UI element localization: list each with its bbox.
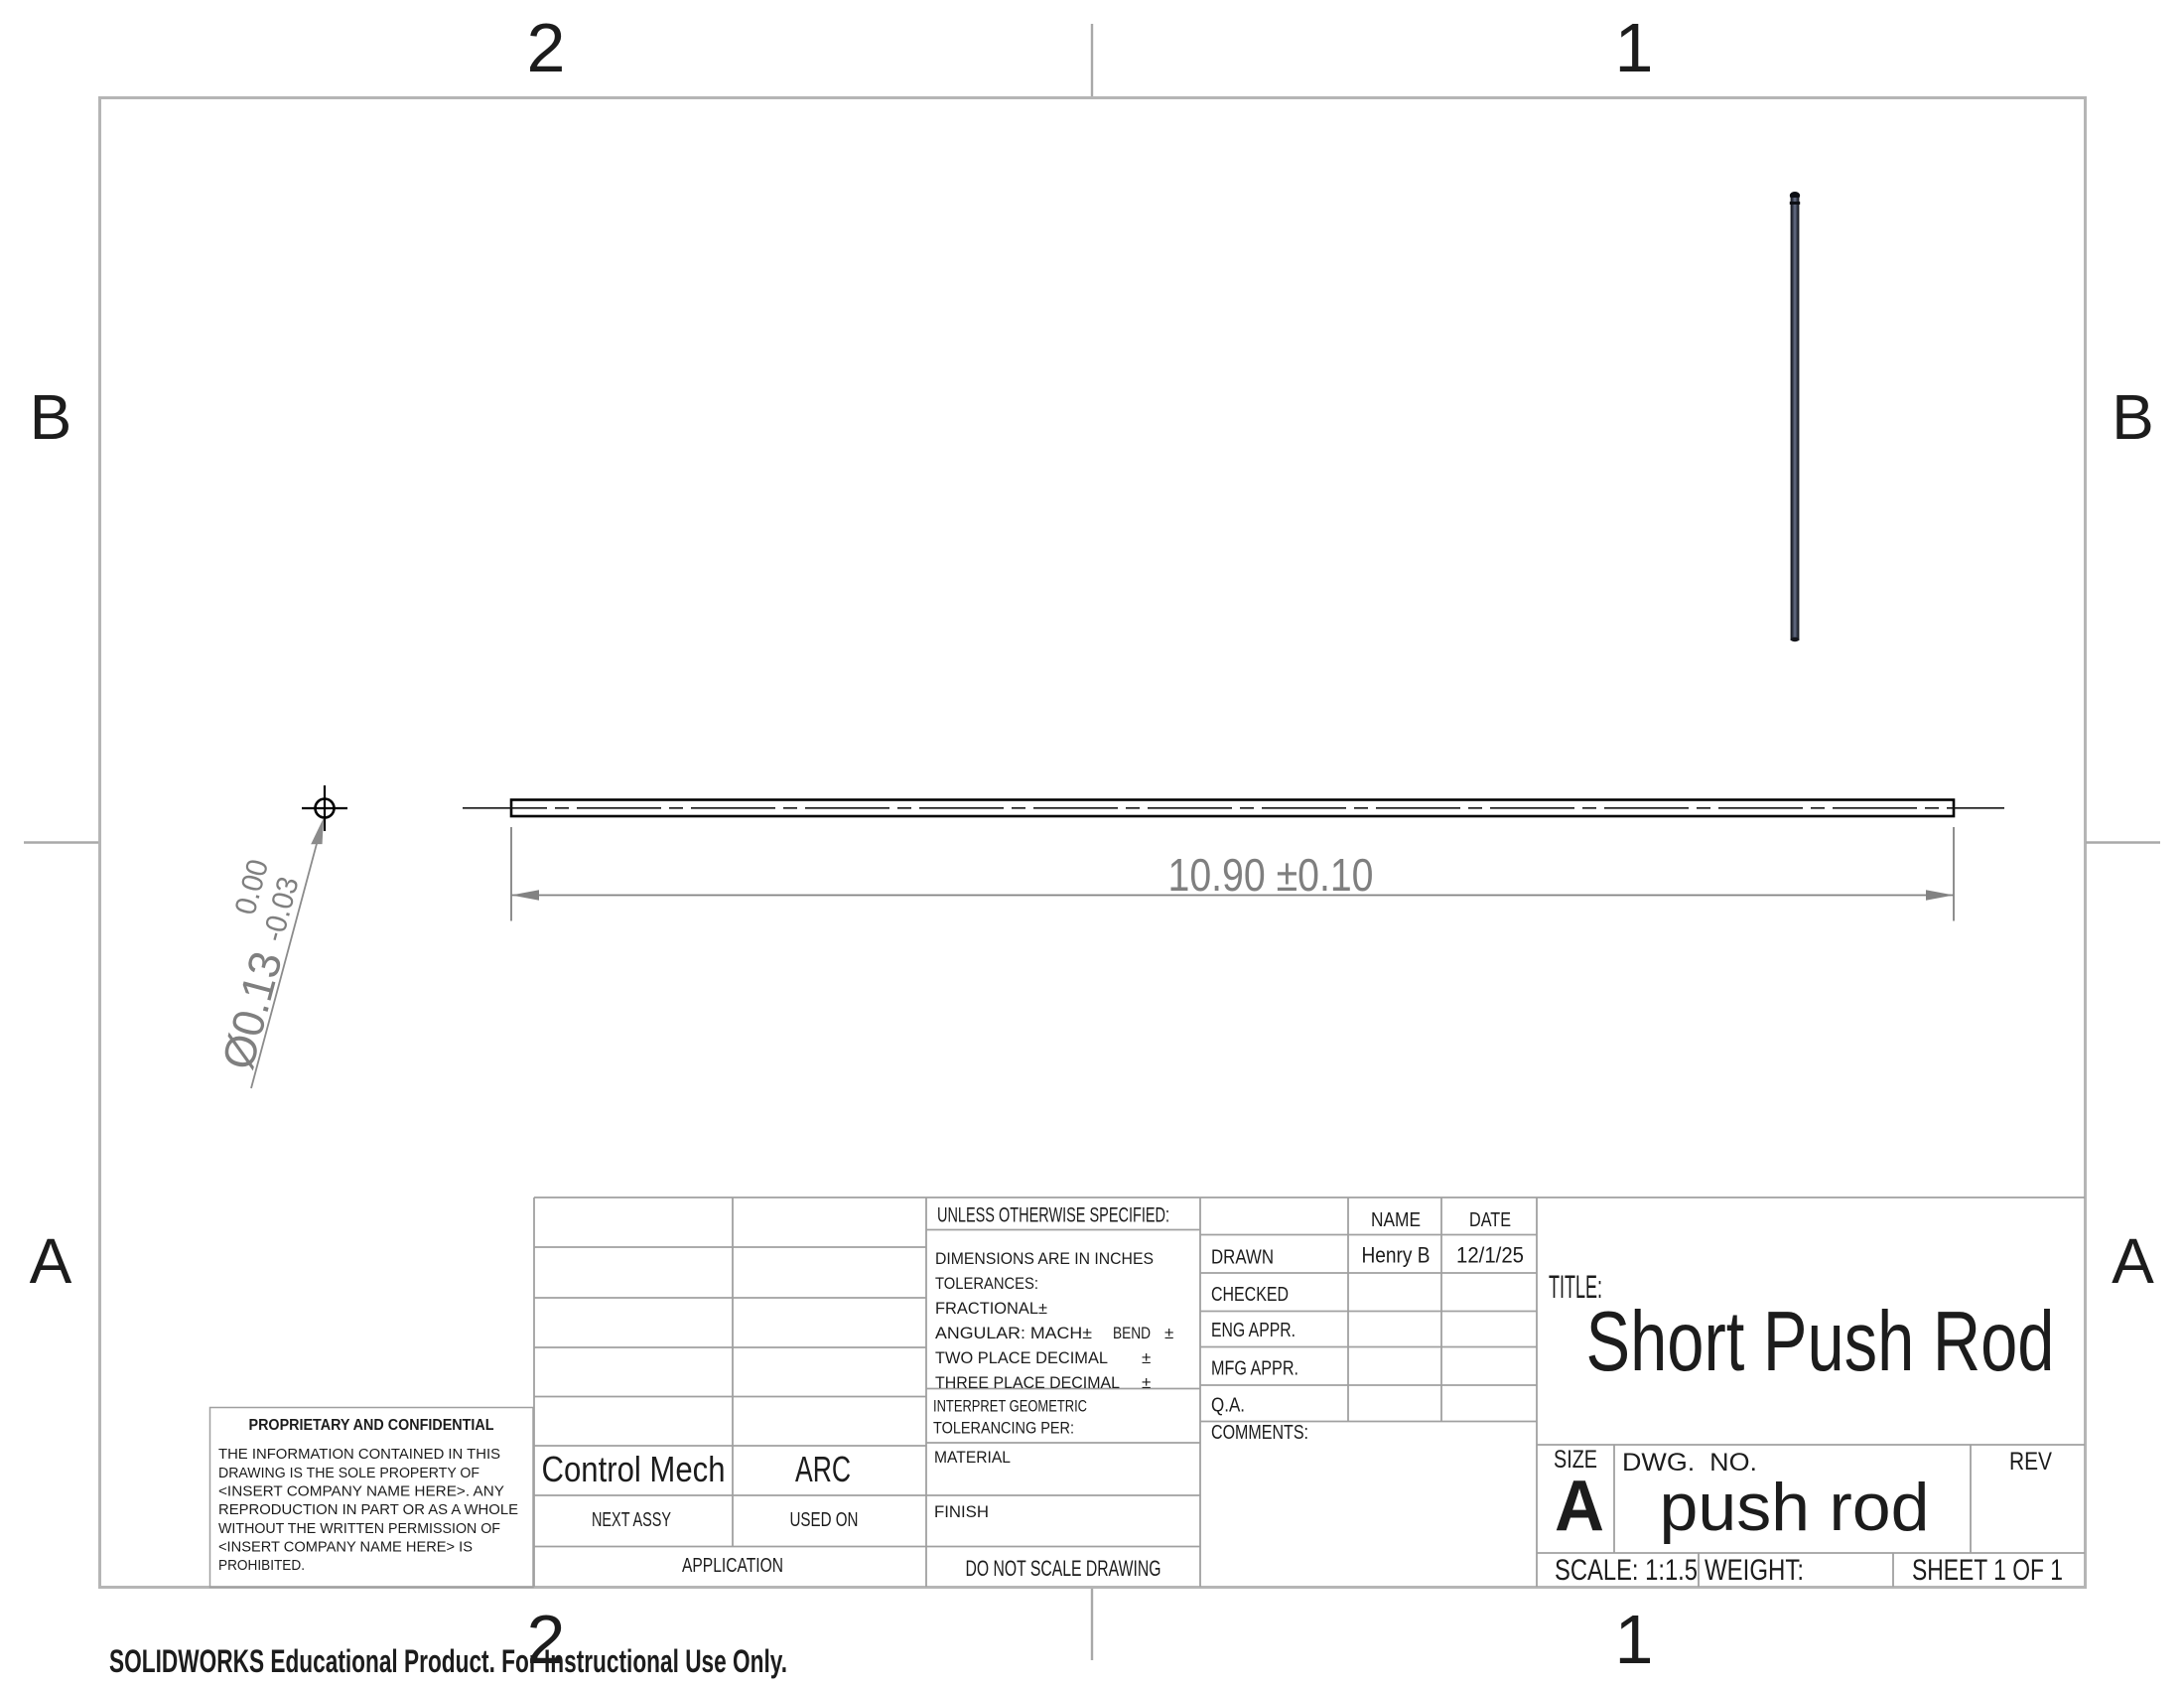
svg-text:±: ± xyxy=(1142,1373,1151,1392)
svg-text:SCALE: 1:1.5: SCALE: 1:1.5 xyxy=(1555,1554,1698,1587)
svg-text:Short Push Rod: Short Push Rod xyxy=(1586,1295,2055,1389)
svg-text:APPLICATION: APPLICATION xyxy=(682,1555,783,1577)
svg-text:±: ± xyxy=(1164,1324,1173,1342)
svg-text:1: 1 xyxy=(1615,1601,1654,1678)
svg-text:WEIGHT:: WEIGHT: xyxy=(1705,1554,1804,1587)
svg-text:A: A xyxy=(1555,1467,1604,1546)
svg-text:A: A xyxy=(30,1225,72,1297)
svg-text:ENG APPR.: ENG APPR. xyxy=(1211,1320,1296,1341)
svg-text:SOLIDWORKS Educational Product: SOLIDWORKS Educational Product. For Inst… xyxy=(109,1643,787,1679)
svg-text:PROHIBITED.: PROHIBITED. xyxy=(218,1557,305,1574)
svg-text:TWO PLACE DECIMAL: TWO PLACE DECIMAL xyxy=(935,1348,1108,1367)
svg-text:FRACTIONAL±: FRACTIONAL± xyxy=(935,1299,1047,1318)
svg-text:NEXT ASSY: NEXT ASSY xyxy=(592,1509,671,1531)
svg-text:WITHOUT THE WRITTEN PERMISSION: WITHOUT THE WRITTEN PERMISSION OF xyxy=(218,1520,500,1537)
svg-text:B: B xyxy=(30,381,72,453)
svg-text:SHEET 1 OF 1: SHEET 1 OF 1 xyxy=(1912,1554,2063,1587)
svg-text:THE INFORMATION CONTAINED IN T: THE INFORMATION CONTAINED IN THIS xyxy=(218,1446,500,1463)
svg-text:DRAWN: DRAWN xyxy=(1211,1247,1274,1269)
svg-text:10.90 ±0.10: 10.90 ±0.10 xyxy=(1168,849,1374,901)
svg-text:THREE PLACE DECIMAL: THREE PLACE DECIMAL xyxy=(935,1373,1120,1392)
svg-text:DO NOT SCALE DRAWING: DO NOT SCALE DRAWING xyxy=(966,1556,1161,1581)
svg-text:MFG APPR.: MFG APPR. xyxy=(1211,1358,1298,1380)
svg-text:BEND: BEND xyxy=(1113,1324,1151,1342)
svg-text:INTERPRET GEOMETRIC: INTERPRET GEOMETRIC xyxy=(933,1397,1087,1416)
svg-text:REV: REV xyxy=(2009,1448,2052,1476)
svg-text:<INSERT COMPANY NAME HERE> IS: <INSERT COMPANY NAME HERE> IS xyxy=(218,1539,473,1556)
svg-text:ANGULAR: MACH±: ANGULAR: MACH± xyxy=(935,1324,1092,1342)
svg-text:COMMENTS:: COMMENTS: xyxy=(1211,1422,1308,1444)
svg-text:MATERIAL: MATERIAL xyxy=(934,1448,1011,1467)
svg-text:REPRODUCTION IN PART OR AS A W: REPRODUCTION IN PART OR AS A WHOLE xyxy=(218,1501,518,1518)
svg-text:PROPRIETARY AND CONFIDENTIAL: PROPRIETARY AND CONFIDENTIAL xyxy=(249,1417,494,1434)
svg-text:CHECKED: CHECKED xyxy=(1211,1284,1289,1306)
svg-text:B: B xyxy=(2112,381,2154,453)
svg-text:DIMENSIONS ARE IN INCHES: DIMENSIONS ARE IN INCHES xyxy=(935,1249,1154,1268)
svg-text:12/1/25: 12/1/25 xyxy=(1456,1243,1524,1268)
svg-text:1: 1 xyxy=(1615,9,1654,86)
svg-text:Q.A.: Q.A. xyxy=(1211,1395,1245,1417)
svg-text:±: ± xyxy=(1142,1348,1151,1367)
svg-text:TOLERANCING PER:: TOLERANCING PER: xyxy=(933,1419,1074,1438)
svg-text:A: A xyxy=(2112,1225,2154,1297)
svg-text:USED ON: USED ON xyxy=(790,1509,859,1531)
svg-text:ARC: ARC xyxy=(795,1449,851,1489)
svg-text:TOLERANCES:: TOLERANCES: xyxy=(935,1274,1038,1293)
svg-text:<INSERT COMPANY NAME HERE>. A: <INSERT COMPANY NAME HERE>. ANY xyxy=(218,1483,504,1500)
svg-text:Henry B: Henry B xyxy=(1362,1243,1431,1268)
svg-text:DRAWING IS THE SOLE PROPERTY O: DRAWING IS THE SOLE PROPERTY OF xyxy=(218,1465,479,1481)
svg-text:NAME: NAME xyxy=(1371,1209,1421,1231)
svg-text:2: 2 xyxy=(527,9,566,86)
svg-text:Control Mech: Control Mech xyxy=(542,1449,726,1489)
svg-text:FINISH: FINISH xyxy=(934,1502,989,1521)
svg-text:DATE: DATE xyxy=(1469,1209,1511,1231)
svg-text:push rod: push rod xyxy=(1660,1470,1930,1545)
svg-text:UNLESS OTHERWISE SPECIFIED:: UNLESS OTHERWISE SPECIFIED: xyxy=(937,1204,1169,1227)
